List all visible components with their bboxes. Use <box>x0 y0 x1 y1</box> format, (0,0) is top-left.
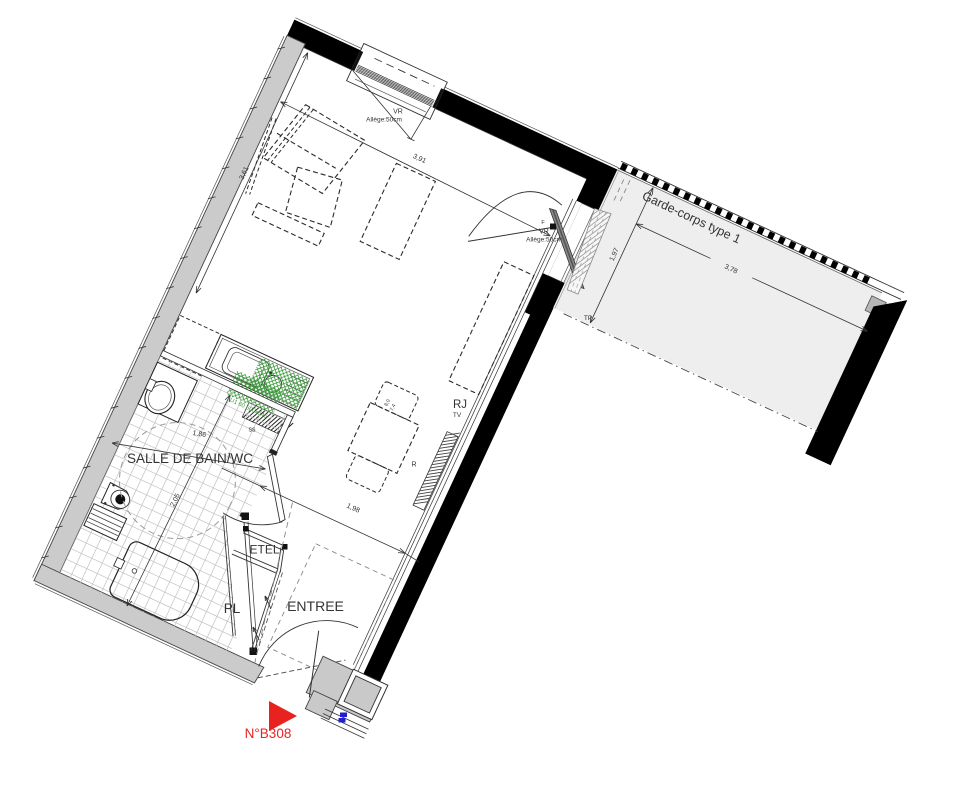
svg-text:VR: VR <box>393 109 403 116</box>
svg-text:Allège:50cm: Allège:50cm <box>526 237 562 244</box>
svg-text:N°B308: N°B308 <box>245 726 292 741</box>
svg-text:ss: ss <box>249 427 257 434</box>
svg-text:PL: PL <box>224 601 241 616</box>
svg-text:Allège:50cm: Allège:50cm <box>366 117 402 124</box>
svg-text:TV: TV <box>453 412 462 419</box>
svg-text:TP: TP <box>584 315 592 322</box>
svg-text:RJ: RJ <box>453 399 467 411</box>
svg-text:1,86: 1,86 <box>192 430 207 439</box>
svg-text:3,91: 3,91 <box>412 153 427 165</box>
svg-text:ENTREE: ENTREE <box>287 598 344 614</box>
svg-text:R: R <box>411 462 416 469</box>
svg-text:F: F <box>541 220 545 226</box>
svg-text:VR: VR <box>539 229 549 236</box>
svg-text:1,98: 1,98 <box>345 503 360 515</box>
svg-text:ETEL: ETEL <box>249 543 279 557</box>
